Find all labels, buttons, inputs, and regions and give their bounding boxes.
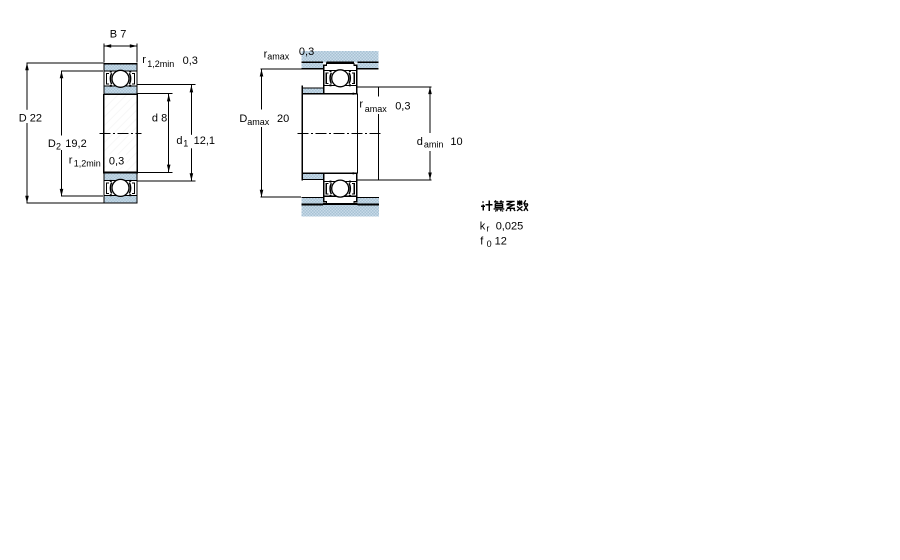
- svg-text:r: r: [69, 155, 73, 167]
- svg-text:19,2: 19,2: [65, 138, 86, 150]
- svg-text:d 8: d 8: [152, 113, 167, 125]
- svg-text:amin: amin: [424, 140, 444, 150]
- svg-text:D 22: D 22: [19, 112, 42, 124]
- svg-text:1,2min: 1,2min: [74, 158, 101, 168]
- svg-text:12: 12: [495, 236, 507, 248]
- svg-text:0,3: 0,3: [395, 100, 410, 112]
- svg-text:0,3: 0,3: [299, 46, 314, 58]
- svg-text:r: r: [359, 98, 363, 110]
- svg-text:B 7: B 7: [110, 28, 127, 40]
- svg-text:amax: amax: [247, 117, 270, 127]
- svg-text:r: r: [142, 54, 146, 66]
- svg-text:d: d: [417, 136, 423, 148]
- svg-text:12,1: 12,1: [194, 135, 215, 147]
- svg-text:D: D: [48, 138, 56, 150]
- svg-text:1,2min: 1,2min: [147, 59, 174, 69]
- svg-text:20: 20: [277, 113, 289, 125]
- svg-text:1: 1: [183, 139, 188, 149]
- svg-text:0: 0: [487, 239, 492, 249]
- svg-text:d: d: [176, 135, 182, 147]
- svg-text:r: r: [486, 223, 489, 233]
- svg-text:D: D: [239, 113, 247, 125]
- svg-text:0,3: 0,3: [109, 155, 124, 167]
- svg-text:amax: amax: [365, 104, 388, 114]
- svg-text:10: 10: [450, 136, 462, 148]
- svg-text:k: k: [480, 220, 486, 232]
- svg-text:0,025: 0,025: [496, 221, 524, 233]
- svg-text:amax: amax: [267, 52, 290, 62]
- svg-text:0,3: 0,3: [183, 55, 198, 67]
- svg-text:2: 2: [56, 142, 61, 152]
